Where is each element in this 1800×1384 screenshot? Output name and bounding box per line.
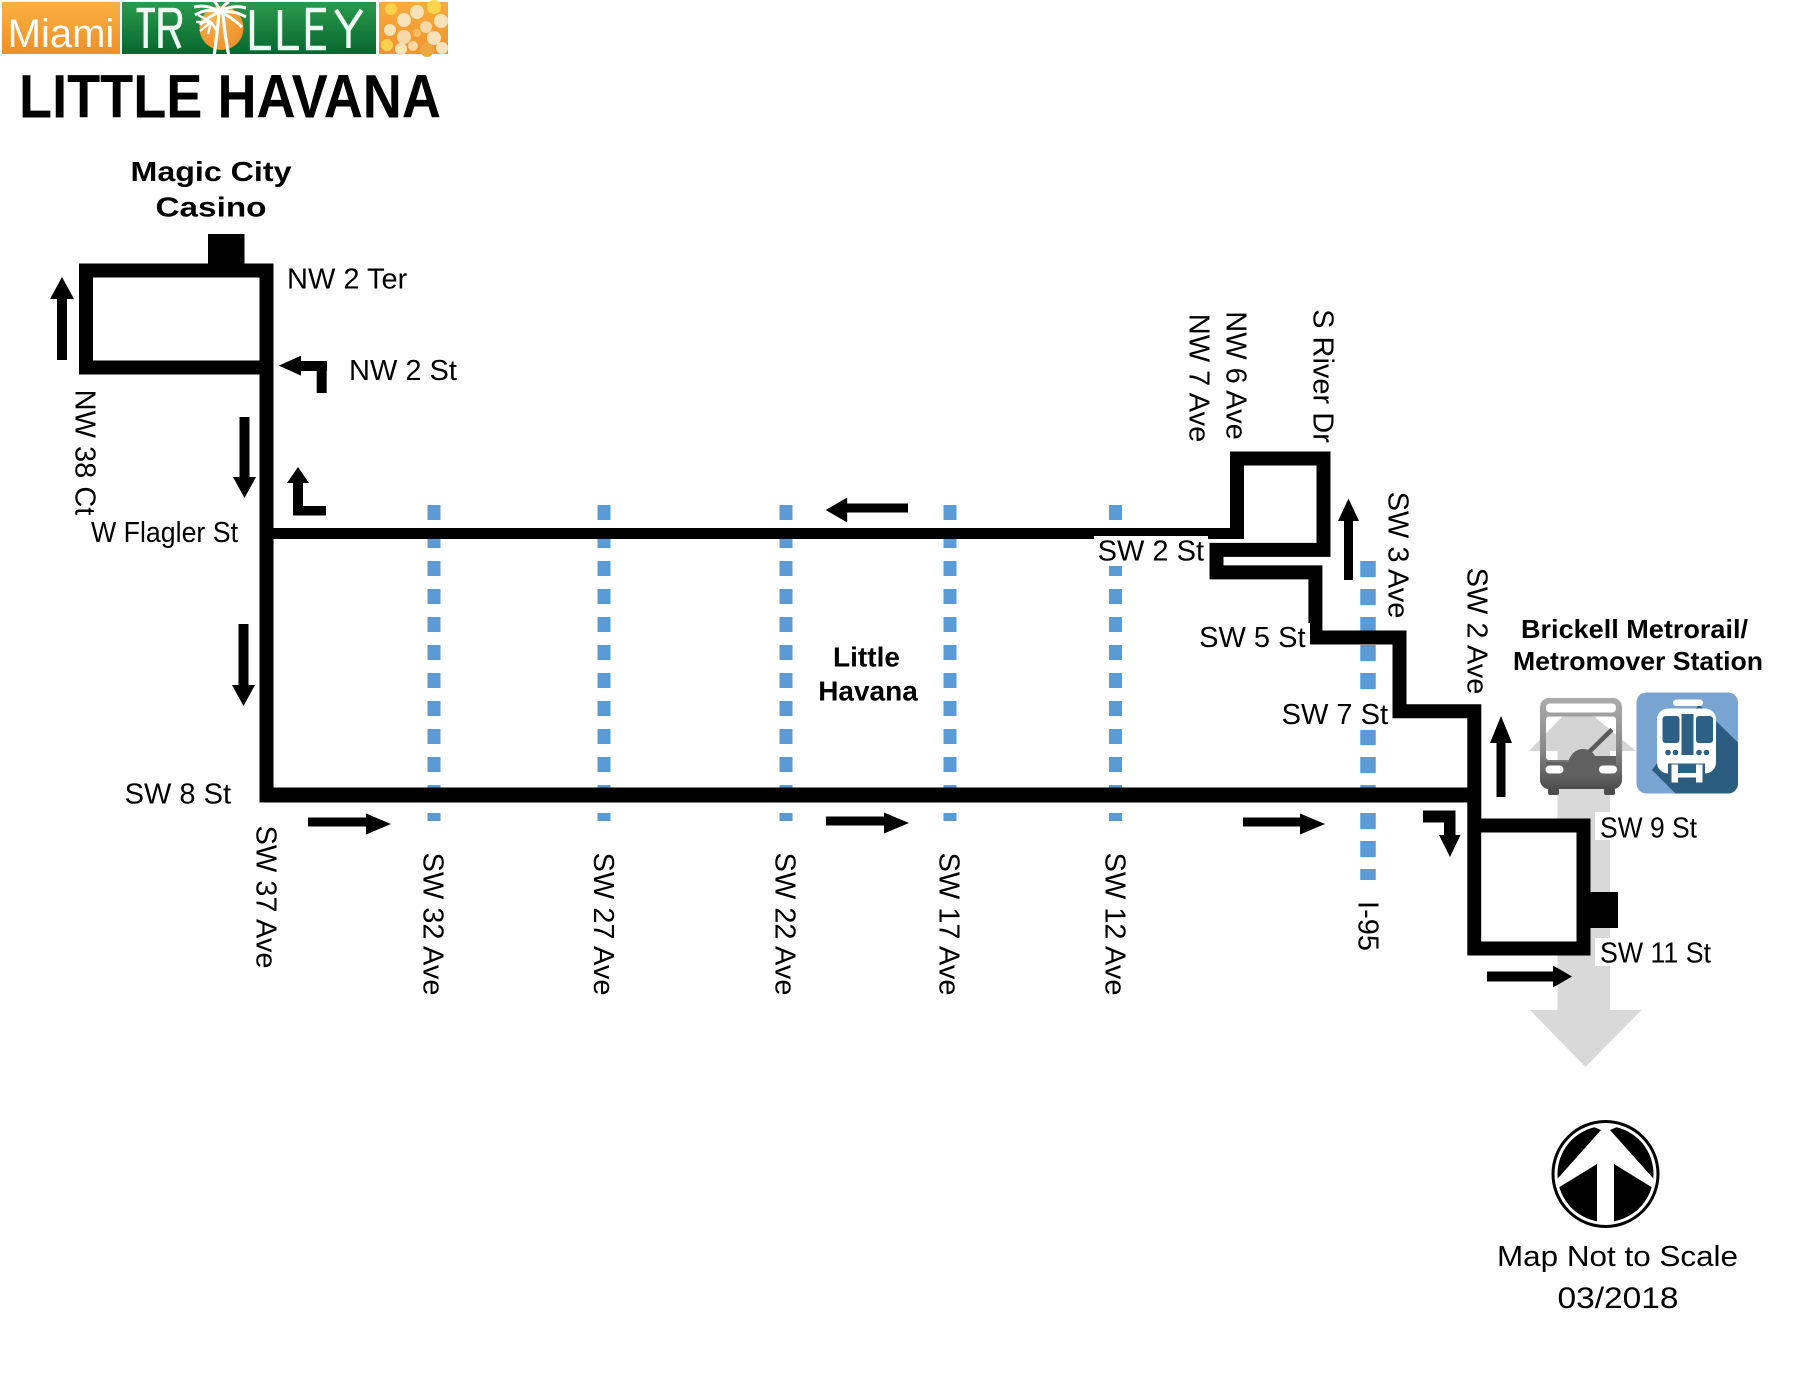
svg-text:SW 9 St: SW 9 St — [1600, 813, 1697, 845]
svg-text:SW 2 St: SW 2 St — [1098, 536, 1204, 568]
svg-text:NW 2 St: NW 2 St — [349, 355, 457, 387]
svg-text:Casino: Casino — [156, 192, 267, 223]
svg-text:LITTLE HAVANA: LITTLE HAVANA — [19, 63, 441, 131]
svg-text:SW 3 Ave: SW 3 Ave — [1382, 492, 1414, 619]
svg-text:NW 6 Ave: NW 6 Ave — [1220, 311, 1252, 439]
svg-text:SW 27 Ave: SW 27 Ave — [587, 853, 619, 996]
svg-text:SW 12 Ave: SW 12 Ave — [1099, 853, 1131, 996]
svg-text:Metromover Station: Metromover Station — [1513, 646, 1763, 676]
svg-text:Brickell Metrorail/: Brickell Metrorail/ — [1521, 614, 1748, 644]
svg-text:Havana: Havana — [818, 676, 918, 707]
svg-text:I-95: I-95 — [1352, 901, 1384, 951]
svg-text:Magic City: Magic City — [131, 156, 292, 187]
svg-text:SW 37 Ave: SW 37 Ave — [250, 826, 282, 969]
svg-text:Map Not to Scale: Map Not to Scale — [1497, 1241, 1738, 1273]
svg-text:SW 22 Ave: SW 22 Ave — [769, 853, 801, 996]
svg-text:SW 5 St: SW 5 St — [1199, 622, 1305, 654]
svg-text:Little: Little — [833, 642, 900, 673]
svg-text:SW 32 Ave: SW 32 Ave — [417, 853, 449, 996]
svg-text:SW 17 Ave: SW 17 Ave — [933, 853, 965, 996]
svg-text:W Flagler St: W Flagler St — [91, 517, 238, 549]
svg-text:S River Dr: S River Dr — [1307, 309, 1339, 443]
svg-text:SW 8 St: SW 8 St — [125, 779, 231, 811]
svg-text:NW 7 Ave: NW 7 Ave — [1183, 314, 1215, 442]
svg-text:NW 38 Ct: NW 38 Ct — [69, 390, 101, 516]
svg-text:SW 11 St: SW 11 St — [1600, 938, 1711, 970]
svg-text:03/2018: 03/2018 — [1558, 1282, 1679, 1315]
svg-text:SW 2 Ave: SW 2 Ave — [1461, 568, 1493, 695]
svg-text:Miami: Miami — [8, 12, 115, 56]
svg-text:SW 7 St: SW 7 St — [1282, 699, 1388, 731]
svg-text:NW 2 Ter: NW 2 Ter — [287, 264, 408, 296]
